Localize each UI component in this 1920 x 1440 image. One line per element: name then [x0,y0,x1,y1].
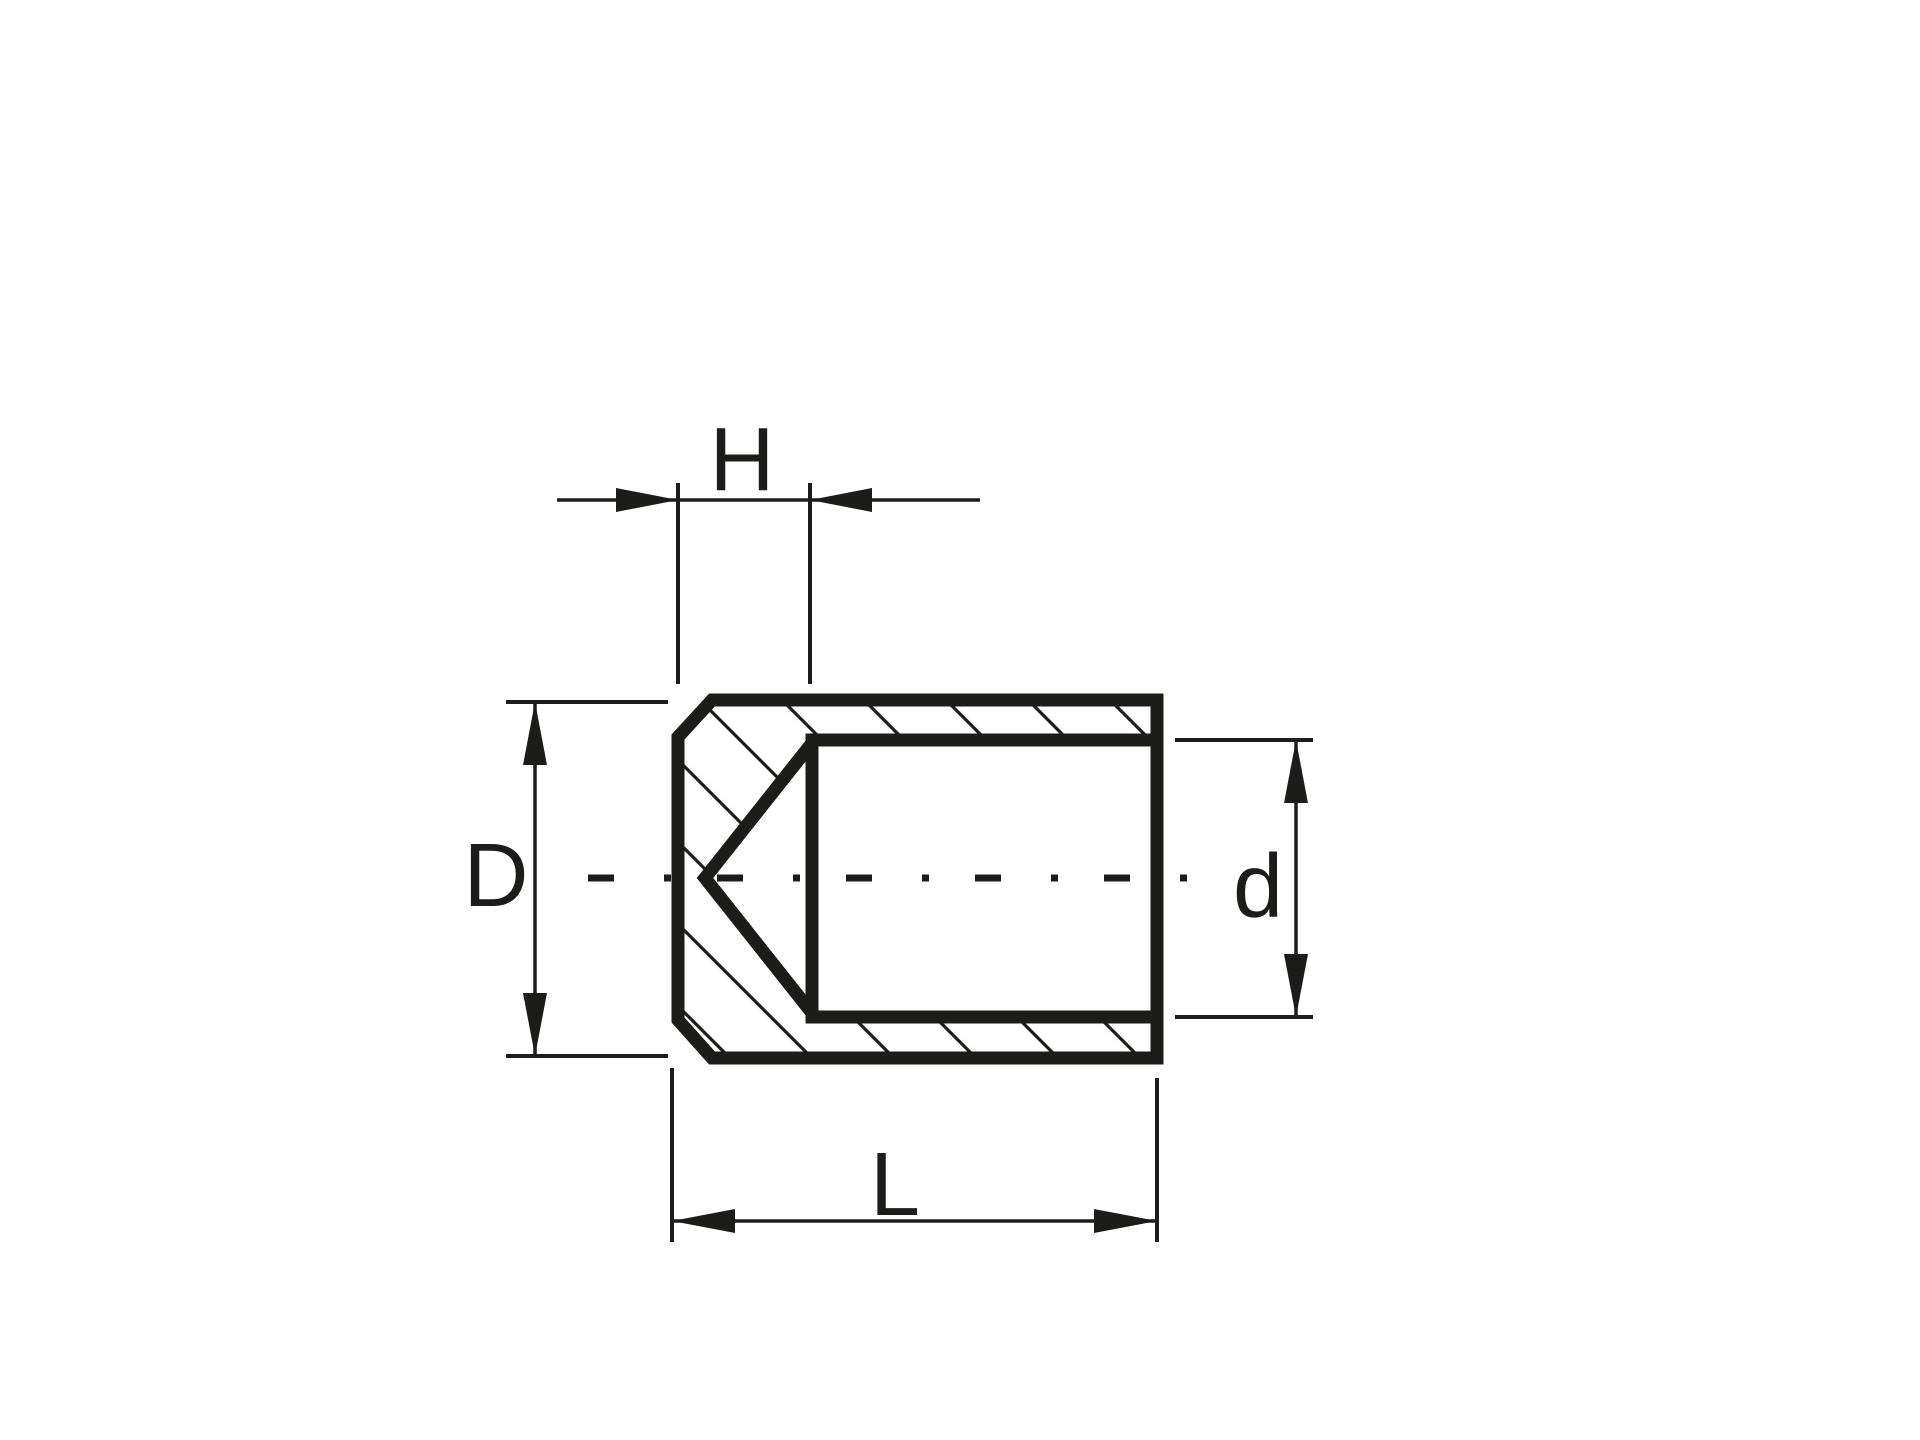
d-inner-dimension-label: d [1233,837,1283,937]
l-dimension-label: L [870,1135,920,1235]
d-outer-dimension-label: D [464,826,529,926]
h-dimension-label: H [710,410,775,510]
technical-drawing: H D d L [0,0,1920,1440]
drawing-canvas: H D d L [0,0,1920,1440]
